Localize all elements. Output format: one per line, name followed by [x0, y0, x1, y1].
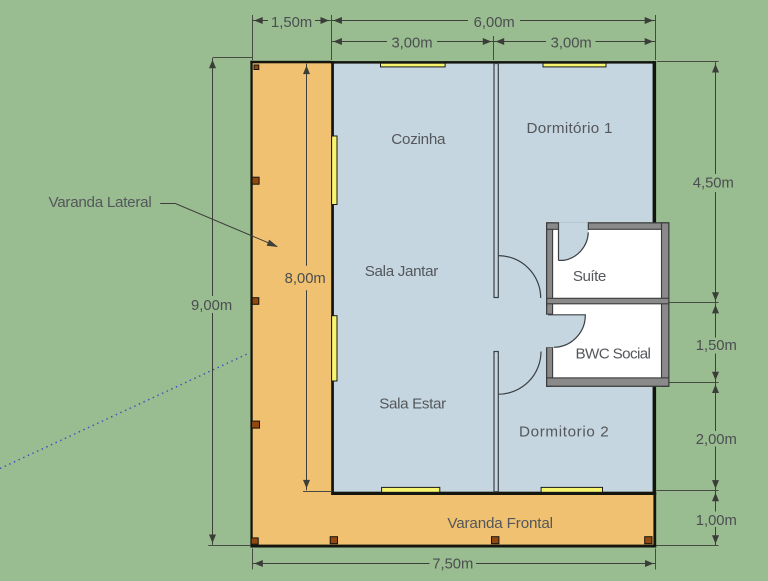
svg-text:8,00m: 8,00m [285, 271, 326, 287]
svg-text:3,00m: 3,00m [391, 36, 432, 52]
svg-text:1,50m: 1,50m [696, 338, 737, 354]
svg-text:Varanda Lateral: Varanda Lateral [49, 194, 152, 211]
svg-text:BWC Social: BWC Social [576, 346, 651, 363]
svg-text:Dormitorio 2: Dormitorio 2 [519, 424, 609, 441]
svg-text:Varanda Frontal: Varanda Frontal [447, 515, 553, 532]
svg-text:Sala Estar: Sala Estar [379, 396, 446, 413]
svg-text:2,00m: 2,00m [696, 432, 737, 448]
svg-text:4,50m: 4,50m [693, 176, 734, 192]
svg-text:3,00m: 3,00m [551, 36, 592, 52]
svg-text:Sala Jantar: Sala Jantar [365, 263, 439, 280]
svg-text:Cozinha: Cozinha [391, 131, 446, 148]
svg-text:Suíte: Suíte [573, 268, 607, 285]
svg-text:6,00m: 6,00m [474, 15, 515, 31]
svg-text:Dormitório 1: Dormitório 1 [527, 120, 613, 137]
svg-text:7,50m: 7,50m [432, 557, 473, 573]
svg-text:1,00m: 1,00m [696, 513, 737, 529]
svg-text:1,50m: 1,50m [271, 15, 312, 31]
svg-text:9,00m: 9,00m [191, 298, 232, 314]
